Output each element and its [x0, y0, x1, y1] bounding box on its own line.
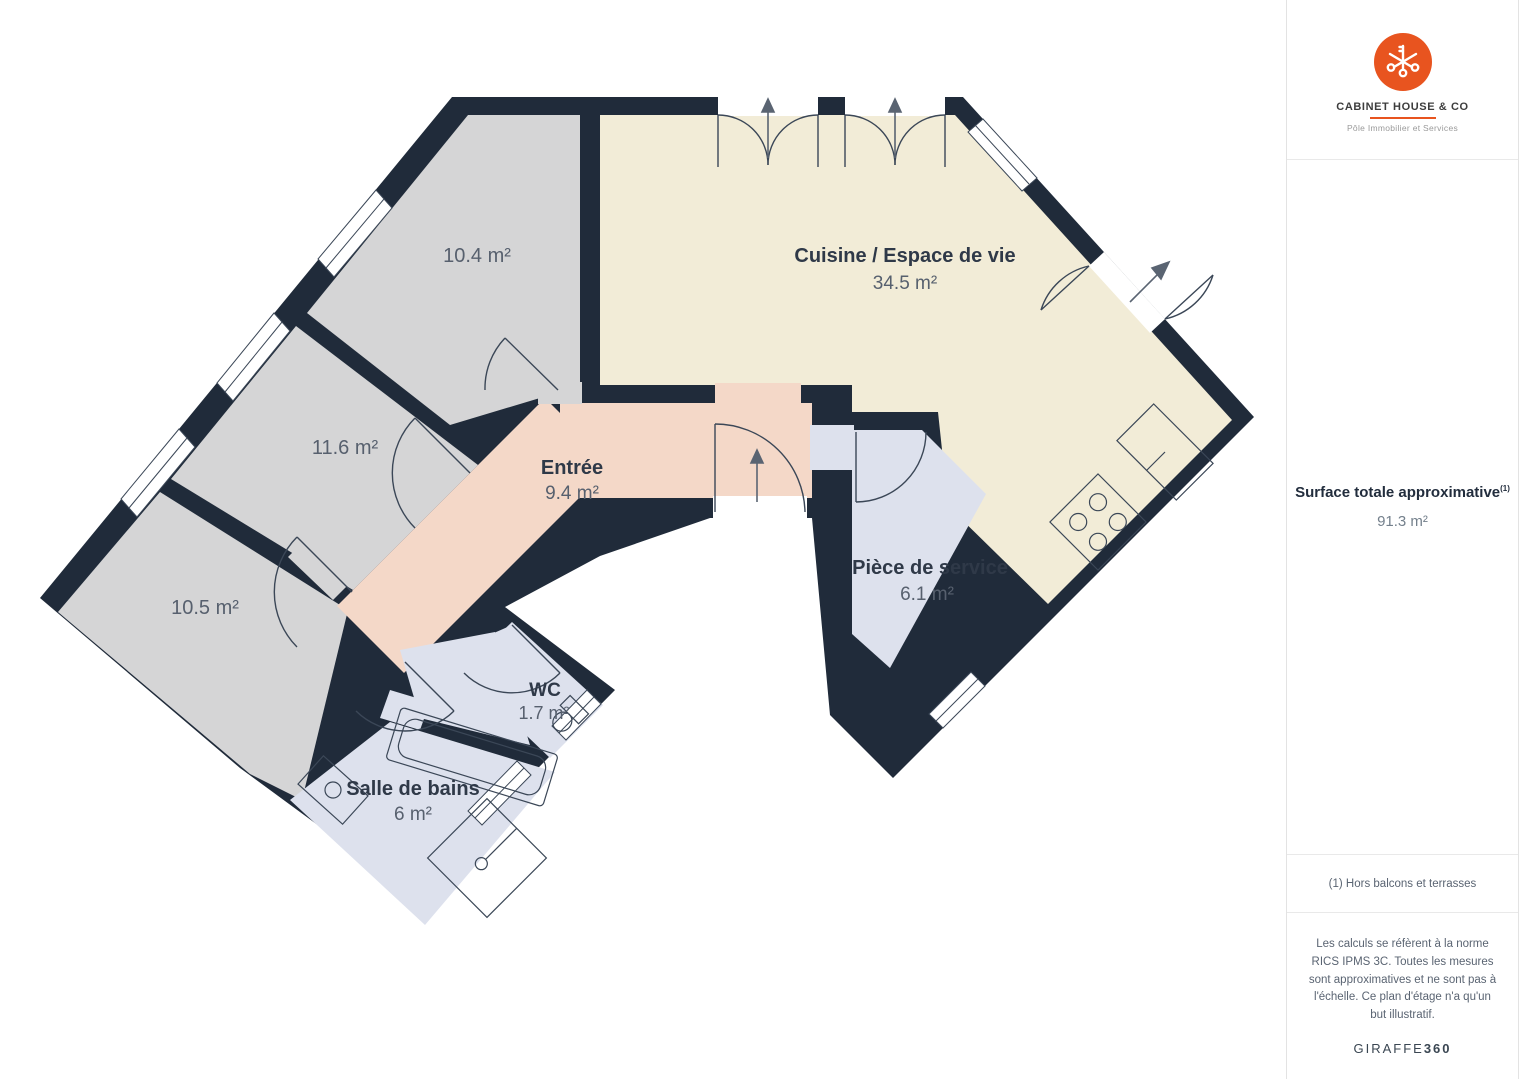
sidebar: CABINET HOUSE & CO Pôle Immobilier et Se… [1286, 0, 1519, 1079]
watermark-brand: GIRAFFE [1353, 1041, 1423, 1056]
keys-icon [1383, 42, 1423, 82]
disclaimer-block: Les calculs se réfèrent à la norme RICS … [1287, 913, 1518, 1079]
brand-name: CABINET HOUSE & CO [1336, 101, 1468, 113]
room-kitchen-area: 34.5 m² [873, 273, 937, 294]
surface-total-value: 91.3 m² [1377, 513, 1428, 530]
brand-rule [1370, 117, 1436, 119]
entree-area: 9.4 m² [545, 483, 599, 504]
room-service-label: Pièce de service [852, 557, 1008, 579]
room-middle-area: 11.6 m² [312, 437, 379, 459]
floorplan-page: 10.4 m² Cuisine / Espace de vie 34.5 m² … [0, 0, 1526, 1079]
surface-total-block: Surface totale approximative(1) 91.3 m² [1287, 160, 1518, 855]
entree-label: Entrée [541, 457, 603, 479]
disclaimer-text: Les calculs se réfèrent à la norme RICS … [1305, 936, 1500, 1025]
room-kitchen-label: Cuisine / Espace de vie [794, 245, 1015, 267]
floorplan-drawing: 10.4 m² Cuisine / Espace de vie 34.5 m² … [0, 0, 1286, 1079]
surface-total-label: Surface totale approximative(1) [1295, 484, 1510, 501]
watermark-suffix: 360 [1424, 1041, 1452, 1056]
surface-total-text: Surface totale approximative [1295, 484, 1500, 501]
brand-tagline: Pôle Immobilier et Services [1347, 123, 1458, 133]
room-wc-area: 1.7 m² [518, 703, 569, 723]
room-top-area: 10.4 m² [443, 245, 511, 267]
brand-block: CABINET HOUSE & CO Pôle Immobilier et Se… [1287, 0, 1518, 160]
entree-kitchen-passage [715, 383, 801, 405]
door-gap-room-top [538, 382, 582, 404]
room-service-area: 6.1 m² [900, 584, 954, 605]
room-bottom-area: 10.5 m² [171, 597, 239, 619]
room-wc-label: WC [529, 680, 561, 701]
surface-total-superscript: (1) [1500, 484, 1510, 493]
room-bath-label: Salle de bains [346, 778, 479, 800]
brand-logo [1374, 33, 1432, 91]
entrance-door-opening [713, 496, 807, 520]
footnote: (1) Hors balcons et terrasses [1287, 855, 1518, 913]
room-bath-area: 6 m² [394, 804, 432, 825]
giraffe360-watermark: GIRAFFE360 [1353, 1041, 1451, 1056]
door-gap-service [810, 425, 854, 470]
